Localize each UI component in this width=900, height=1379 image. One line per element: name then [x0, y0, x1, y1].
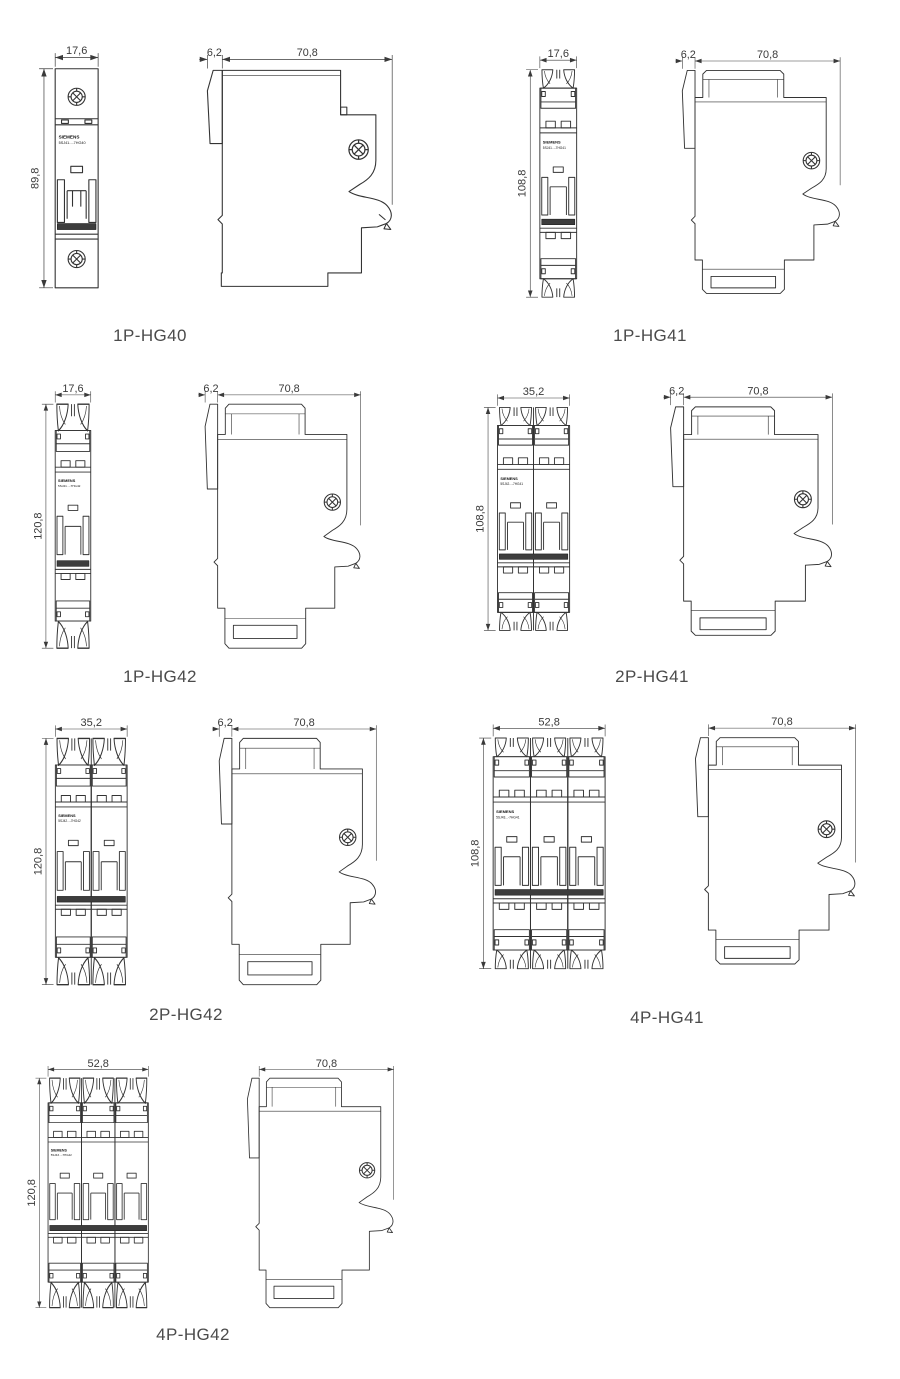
breaker-front-drawing [540, 70, 577, 297]
side-view-4p-hg41: 70,8 [683, 720, 862, 967]
front-module [55, 69, 98, 288]
dim-depth-label: 70,8 [748, 385, 769, 397]
model-label: 5SJ41...-7HG42 [58, 484, 81, 488]
dim-height-label: 108,8 [474, 505, 486, 533]
dim-width-label: 17,6 [62, 383, 83, 395]
toggle-bar [542, 219, 575, 224]
figure-caption: 2P-HG42 [149, 1005, 223, 1025]
dim-width-label: 52,8 [87, 1058, 108, 1070]
figure-caption: 2P-HG41 [615, 667, 689, 687]
toggle-bar [57, 224, 96, 230]
dim-depth-label: 70,8 [293, 717, 314, 729]
toggle-bar [495, 890, 603, 896]
front-view-2p-hg42: 35,2 120,8 SIEMENS 5SJ42...-7HG42 [36, 721, 130, 988]
dim-offset-label: 6,2 [680, 49, 695, 61]
breaker-front-drawing [497, 407, 569, 630]
front-module [568, 738, 605, 969]
front-module [540, 70, 577, 297]
breaker-side-drawing [207, 70, 391, 286]
side-profile [671, 407, 832, 635]
front-view-1p-hg42: 17,6 120,8 SIEMENS 5SJ41...-7HG42 [36, 387, 94, 651]
toggle-bar [57, 560, 89, 566]
breaker-front-drawing [55, 69, 98, 288]
brand-label: SIEMENS [58, 479, 76, 483]
dim-offset-label: 6,2 [206, 47, 221, 59]
side-profile [682, 70, 839, 293]
front-module [55, 404, 91, 648]
side-profile [205, 404, 360, 648]
front-view-2p-hg41: 35,2 108,8 SIEMENS 5SJ42...-7HG41 [478, 390, 573, 634]
toggle-bar [499, 554, 567, 559]
front-module [530, 738, 567, 969]
dim-offset-label: 6,2 [217, 717, 232, 729]
drawing-canvas: 17,6 89,8 SIEMENS 5SJ41...-7HG40 6,2 70,… [0, 0, 900, 1379]
model-label: 5SJ43...-7HG42 [51, 1153, 72, 1157]
dim-width-label: 35,2 [522, 386, 544, 398]
front-module [115, 1078, 148, 1307]
side-view-1p-hg40: 6,2 70,8 [193, 50, 399, 291]
side-view-2p-hg42: 6,2 70,8 [207, 721, 382, 988]
dimensions: 70,8 [259, 1058, 394, 1200]
brand-label: SIEMENS [58, 135, 79, 140]
front-view-1p-hg41: 17,6 108,8 SIEMENS 5SJ41...-7HG41 [520, 52, 580, 300]
toggle-bar [50, 1225, 147, 1230]
model-label: 5SJ42...-7HG41 [500, 482, 523, 486]
side-profile [219, 738, 375, 984]
dim-height-label: 120,8 [32, 512, 44, 539]
dim-depth-label: 70,8 [771, 716, 792, 728]
front-module [91, 738, 127, 984]
dim-height-label: 108,8 [517, 170, 529, 198]
dim-height-label: 120,8 [32, 847, 44, 875]
figure-caption: 4P-HG41 [630, 1008, 704, 1028]
front-view-4p-hg41: 52,8 108,8 SIEMENS 5SJ43...-7HG41 [473, 720, 608, 972]
dim-height-label: 120,8 [26, 1179, 38, 1207]
toggle-bar [57, 896, 125, 902]
dim-depth-label: 70,8 [315, 1058, 336, 1070]
dim-width-label: 17,6 [66, 45, 87, 57]
breaker-side-drawing [247, 1078, 393, 1308]
side-view-1p-hg41: 6,2 70,8 [670, 53, 846, 297]
breaker-side-drawing [205, 404, 360, 648]
side-view-4p-hg42: 70,8 [236, 1062, 399, 1311]
brand-label: SIEMENS [496, 809, 514, 814]
side-view-1p-hg42: 6,2 70,8 [193, 387, 367, 651]
brand-label: SIEMENS [58, 813, 76, 818]
breaker-front-drawing [48, 1078, 148, 1307]
breaker-front-drawing [55, 738, 127, 984]
front-module [48, 1078, 81, 1307]
dim-height-label: 108,8 [470, 840, 482, 868]
figure-caption: 1P-HG41 [613, 326, 687, 346]
pole-separator [530, 738, 567, 969]
model-label: 5SJ41...-7HG40 [58, 141, 85, 145]
front-module [533, 407, 569, 630]
front-module [81, 1078, 114, 1307]
dimensions: 17,6 89,8 [29, 45, 98, 288]
breaker-side-drawing [219, 738, 375, 984]
side-profile [247, 1078, 393, 1308]
front-module [55, 738, 91, 984]
figure-caption: 1P-HG42 [123, 667, 197, 687]
dim-offset-label: 6,2 [669, 385, 684, 397]
figure-caption: 1P-HG40 [113, 326, 187, 346]
model-label: 5SJ42...-7HG42 [58, 819, 81, 823]
dim-width-label: 35,2 [80, 717, 101, 729]
model-label: 5SJ41...-7HG41 [543, 146, 566, 150]
dim-width-label: 17,6 [548, 48, 570, 60]
front-module [497, 407, 533, 630]
figure-caption: 4P-HG42 [156, 1325, 230, 1345]
breaker-side-drawing [695, 738, 854, 964]
front-view-1p-hg40: 17,6 89,8 SIEMENS 5SJ41...-7HG40 [32, 48, 102, 292]
breaker-side-drawing [682, 70, 839, 293]
breaker-side-drawing [671, 407, 832, 635]
dim-depth-label: 70,8 [278, 383, 299, 395]
side-profile [695, 738, 854, 964]
breaker-front-drawing [493, 738, 605, 969]
dim-depth-label: 70,8 [296, 47, 317, 59]
dim-depth-label: 70,8 [757, 49, 778, 61]
dim-height-label: 89,8 [29, 168, 41, 189]
model-label: 5SJ43...-7HG41 [496, 815, 520, 819]
side-view-2p-hg41: 6,2 70,8 [658, 389, 839, 639]
side-profile [207, 70, 391, 286]
front-view-4p-hg42: 52,8 120,8 SIEMENS 5SJ43...-7HG42 [30, 1062, 151, 1311]
dim-width-label: 52,8 [538, 716, 559, 728]
brand-label: SIEMENS [543, 140, 561, 145]
brand-label: SIEMENS [51, 1148, 68, 1152]
brand-label: SIEMENS [500, 476, 518, 481]
dim-offset-label: 6,2 [203, 383, 218, 395]
breaker-front-drawing [55, 404, 91, 648]
front-module [493, 738, 530, 969]
